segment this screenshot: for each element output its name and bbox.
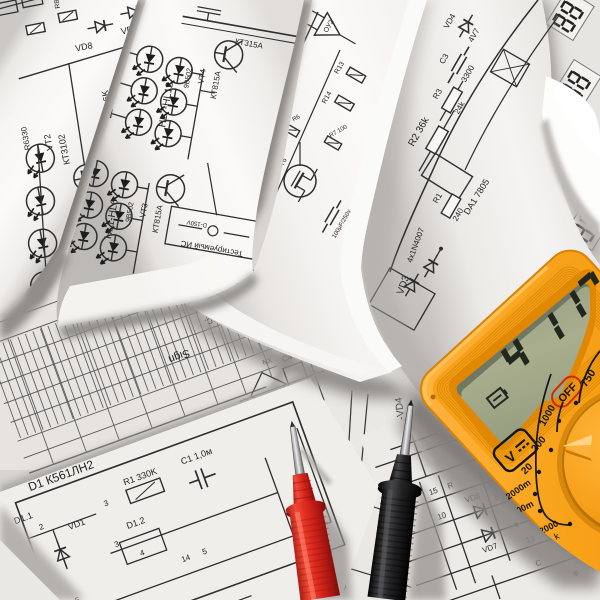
- svg-text:R81: R81: [53, 0, 62, 9]
